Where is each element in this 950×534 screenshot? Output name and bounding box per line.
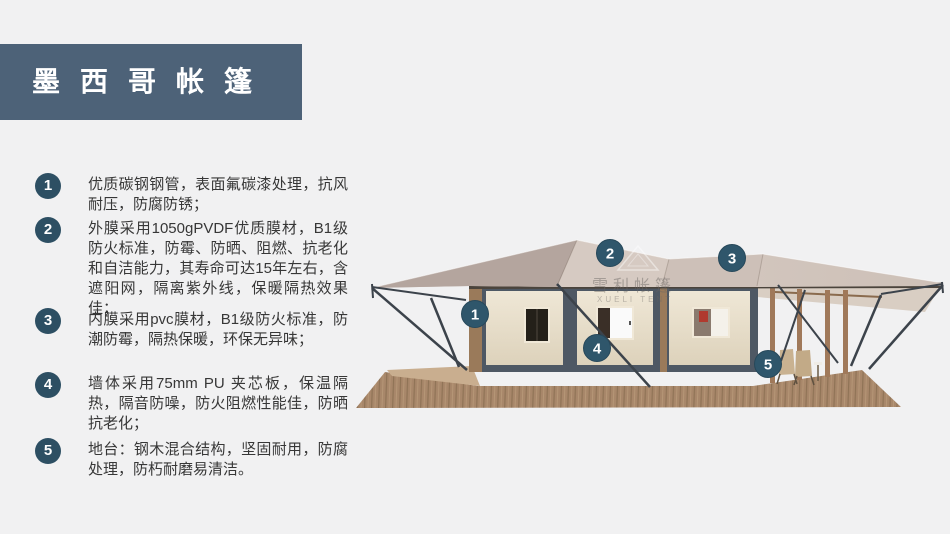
callout-1: 1 [462,301,489,328]
window-panel-3 [692,307,730,338]
tent-illustration: 雪利帐篷 XUELI TENT 1 2 3 [350,225,950,420]
page: 墨西哥帐篷 1 优质碳钢钢管，表面氟碳漆处理，抗风耐压，防腐防锈； 2 外膜采用… [0,0,950,534]
callout-4: 4 [584,335,611,362]
feature-item-4: 4 墙体采用75mm PU 夹芯板，保温隔热，隔音防噪，防火阻燃性能佳，防晒抗老… [35,372,350,434]
callout-number: 1 [471,306,479,323]
watermark-en: XUELI TENT [597,295,673,304]
feature-item-2: 2 外膜采用1050gPVDF优质膜材，B1级防火标准，防霉、防晒、阻燃、抗老化… [35,217,350,319]
feature-text: 内膜采用pvc膜材，B1级防火标准，防潮防霉，隔热保暖，环保无异味； [88,310,348,350]
feature-text: 优质碳钢钢管，表面氟碳漆处理，抗风耐压，防腐防锈； [88,175,348,215]
feature-item-5: 5 地台：钢木混合结构，坚固耐用，防腐处理，防朽耐磨易清洁。 [35,438,350,480]
feature-text: 外膜采用1050gPVDF优质膜材，B1级防火标准，防霉、防晒、阻燃、抗老化和自… [88,219,348,319]
callout-2: 2 [597,240,624,267]
page-title: 墨西哥帐篷 [0,44,302,120]
callout-number: 2 [606,245,614,262]
page-title-banner: 墨西哥帐篷 [0,44,302,120]
callout-number: 4 [593,340,602,357]
feature-text: 地台：钢木混合结构，坚固耐用，防腐处理，防朽耐磨易清洁。 [88,440,348,480]
feature-number-badge: 3 [35,308,61,334]
feature-number-badge: 5 [35,438,61,464]
window-panel-1 [524,307,550,343]
feature-item-3: 3 内膜采用pvc膜材，B1级防火标准，防潮防霉，隔热保暖，环保无异味； [35,308,350,350]
corner-post-left [469,284,482,372]
feature-item-1: 1 优质碳钢钢管，表面氟碳漆处理，抗风耐压，防腐防锈； [35,173,350,215]
watermark-cn: 雪利帐篷 [592,276,676,295]
callout-3: 3 [719,245,746,272]
feature-number-badge: 1 [35,173,61,199]
feature-number-badge: 2 [35,217,61,243]
callout-number: 5 [764,356,772,373]
callout-5: 5 [755,351,782,378]
feature-text: 墙体采用75mm PU 夹芯板，保温隔热，隔音防噪，防火阻燃性能佳，防晒抗老化； [88,374,348,434]
callout-number: 3 [728,250,736,267]
feature-number-badge: 4 [35,372,61,398]
